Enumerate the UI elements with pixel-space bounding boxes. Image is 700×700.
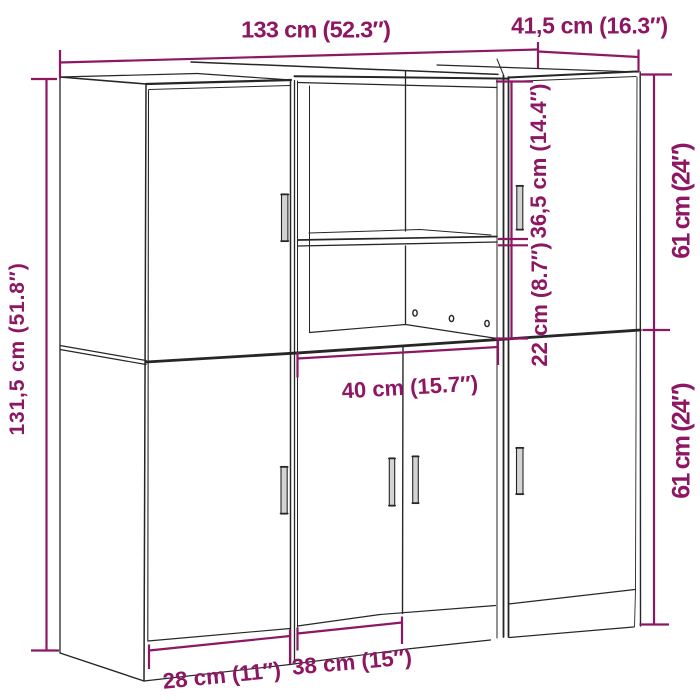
svg-text:36,5 cm (14.4″): 36,5 cm (14.4″): [526, 84, 551, 239]
svg-text:61 cm (24″): 61 cm (24″): [668, 143, 696, 259]
svg-text:61 cm (24″): 61 cm (24″): [668, 383, 696, 499]
svg-text:22 cm (8.7″): 22 cm (8.7″): [527, 242, 552, 366]
svg-text:133 cm (52.3″): 133 cm (52.3″): [241, 17, 390, 43]
svg-text:131,5 cm (51.8″): 131,5 cm (51.8″): [6, 262, 29, 435]
svg-text:41,5 cm (16.3″): 41,5 cm (16.3″): [511, 13, 668, 39]
